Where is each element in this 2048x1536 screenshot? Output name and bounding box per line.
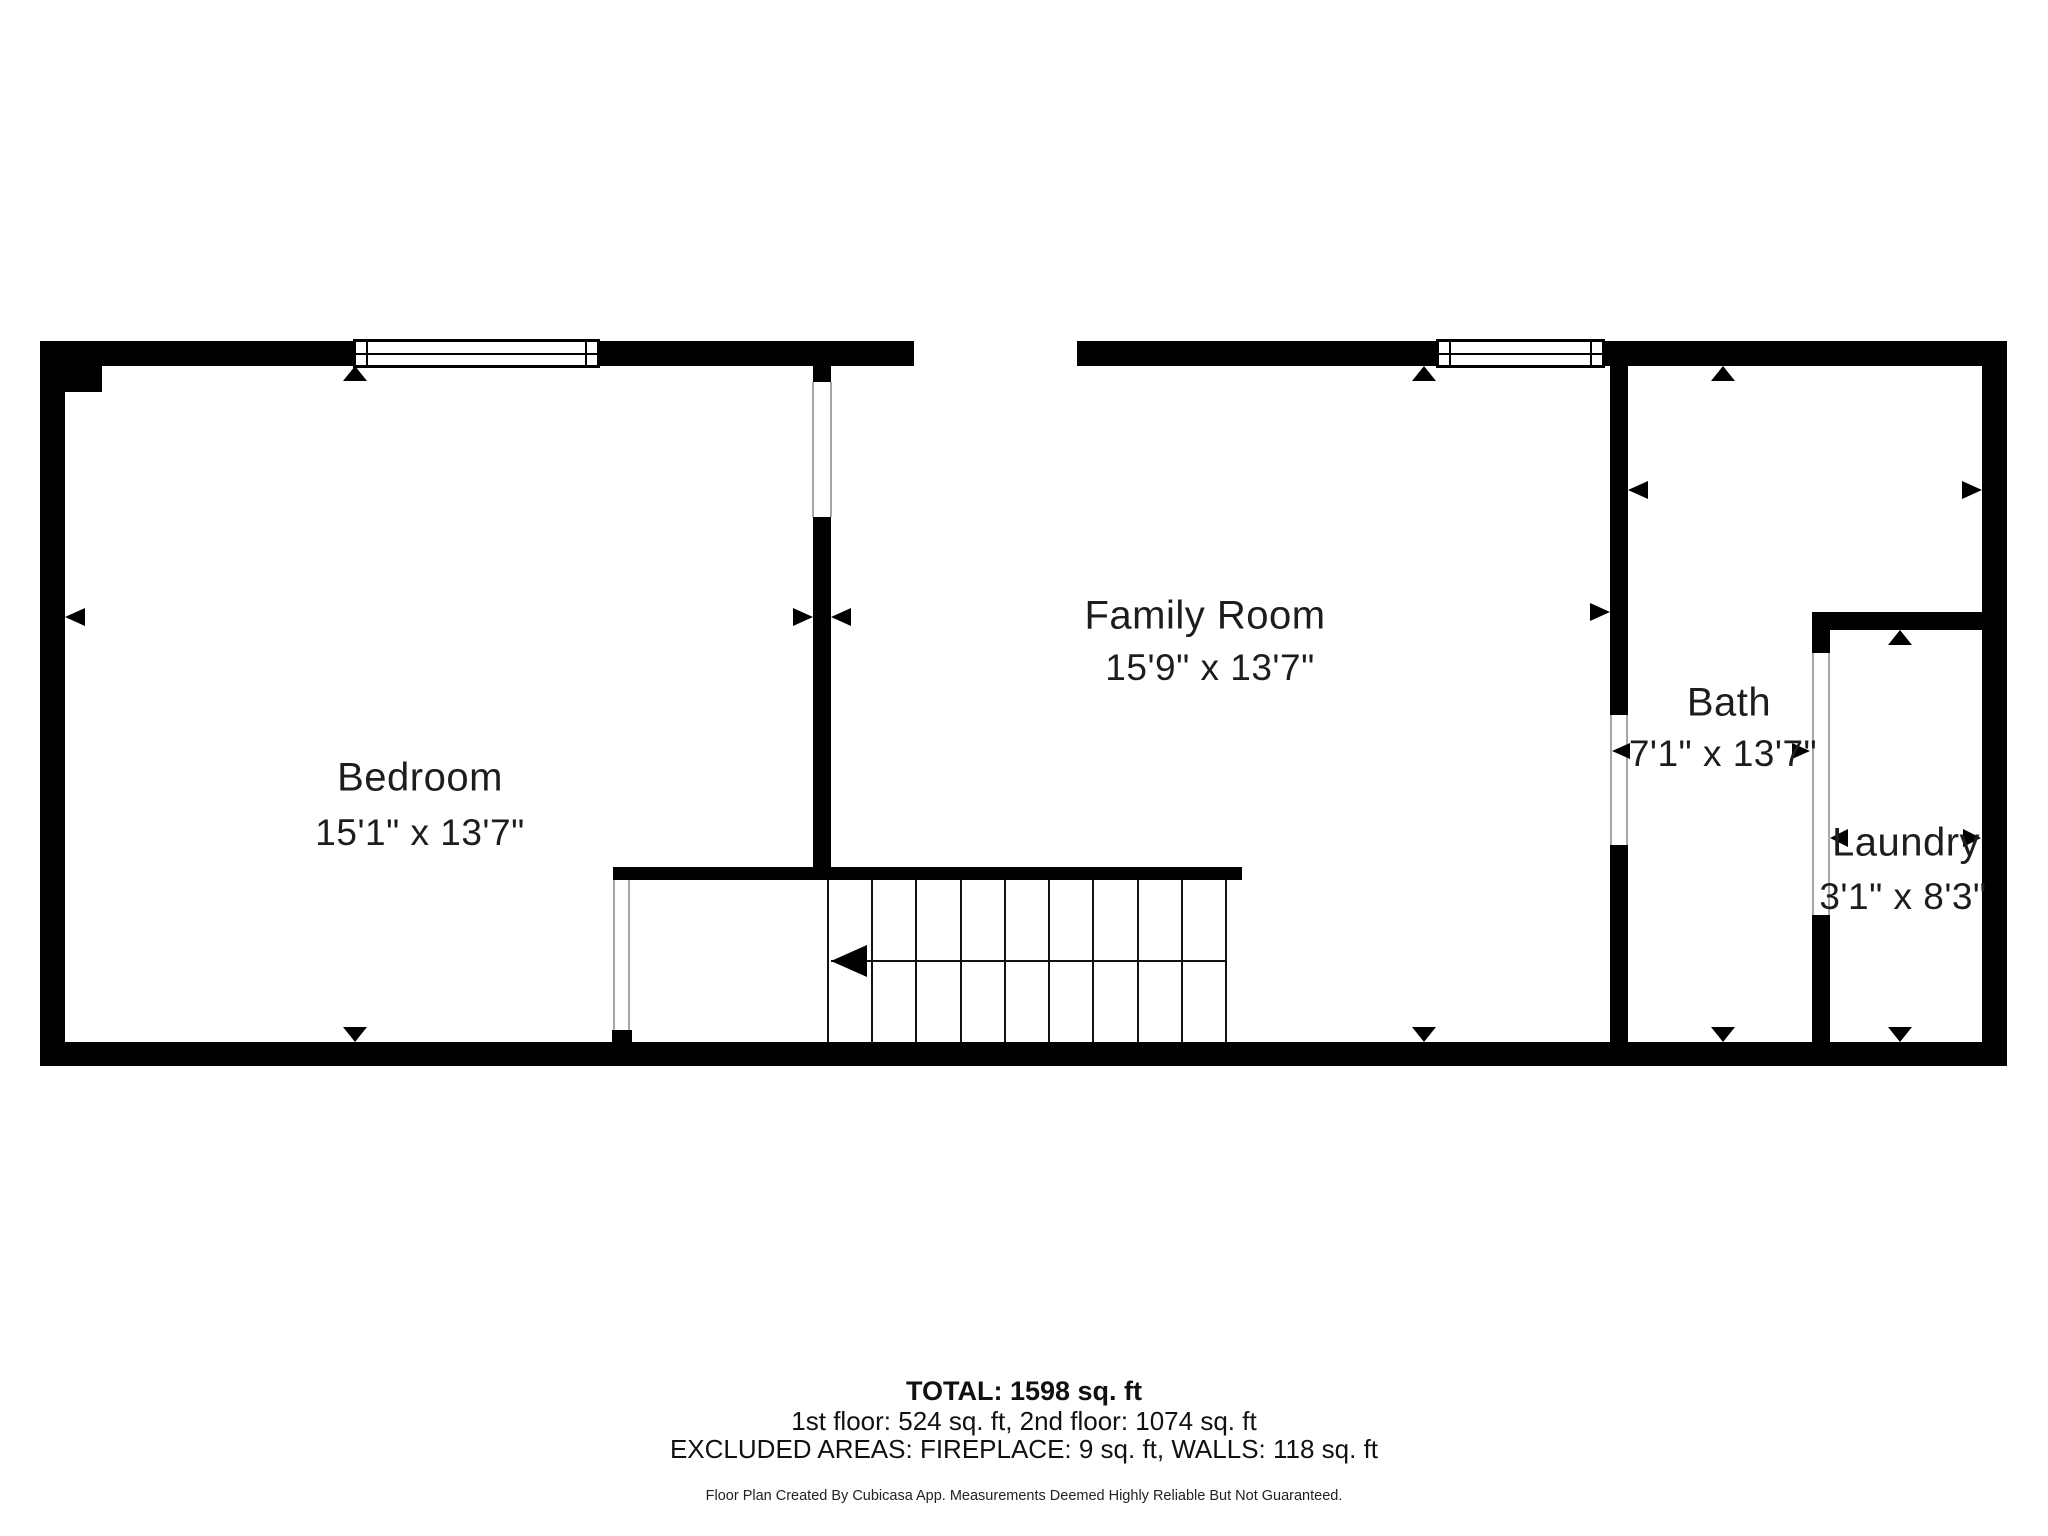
window-frame-cap: [1449, 342, 1451, 365]
stair-tread-line: [827, 880, 829, 1042]
window: [353, 339, 600, 368]
dimension-arrow: [1888, 630, 1912, 645]
stair-direction-line: [831, 960, 1226, 962]
floor-plan-canvas: Bedroom15'1" x 13'7"Family Room15'9" x 1…: [0, 0, 2048, 1536]
total-area-text: TOTAL: 1598 sq. ft: [0, 1376, 2048, 1407]
dimension-arrow: [1628, 481, 1648, 499]
door-opening-jamb: [812, 382, 814, 517]
dimension-arrow: [1711, 1027, 1735, 1042]
stair-direction-arrow: [831, 945, 867, 977]
wall-left-wall: [40, 341, 65, 1066]
excluded-areas-text: EXCLUDED AREAS: FIREPLACE: 9 sq. ft, WAL…: [0, 1434, 2048, 1465]
disclaimer-text: Floor Plan Created By Cubicasa App. Meas…: [0, 1488, 2048, 1504]
dimension-arrow: [1590, 603, 1610, 621]
dimension-arrow: [793, 608, 813, 626]
dimension-arrow: [343, 366, 367, 381]
room-label-bath: Bath: [1687, 681, 1771, 726]
door-opening-jamb: [830, 382, 832, 517]
room-label-bedroom: Bedroom: [337, 756, 503, 801]
door-opening-jamb: [628, 880, 630, 1030]
floor-areas-text: 1st floor: 524 sq. ft, 2nd floor: 1074 s…: [0, 1406, 2048, 1437]
dimension-arrow: [1412, 366, 1436, 381]
window: [1436, 339, 1605, 368]
room-dims-bath: 7'1" x 13'7": [1629, 733, 1817, 775]
room-label-laundry: Laundry: [1832, 821, 1980, 866]
wall-bedroom-family-wall-stub: [813, 366, 831, 382]
dimension-arrow: [65, 608, 85, 626]
window-glazing-line: [356, 353, 597, 355]
dimension-arrow: [831, 608, 851, 626]
door-opening-jamb: [1626, 715, 1628, 845]
wall-laundry-wall-lower: [1812, 915, 1830, 1042]
dimension-arrow: [343, 1027, 367, 1042]
room-label-family-room: Family Room: [1084, 594, 1325, 639]
dimension-arrow: [1888, 1027, 1912, 1042]
dimension-arrow: [1412, 1027, 1436, 1042]
door-opening-jamb: [1812, 653, 1814, 915]
window-frame-cap: [366, 342, 368, 365]
wall-family-bath-wall-upper: [1610, 366, 1628, 715]
room-dims-bedroom: 15'1" x 13'7": [315, 812, 524, 854]
wall-stairwell-wall: [613, 867, 1242, 880]
door-opening-jamb: [1610, 715, 1612, 845]
room-dims-laundry: 3'1" x 8'3": [1819, 876, 1986, 918]
window-glazing-line: [1439, 353, 1602, 355]
wall-top-left-corner-block: [40, 341, 102, 392]
dimension-arrow: [1711, 366, 1735, 381]
room-dims-family-room: 15'9" x 13'7": [1105, 647, 1314, 689]
window-frame-cap: [585, 342, 587, 365]
wall-bedroom-family-wall: [813, 517, 831, 880]
wall-bedroom-door-stub: [612, 1030, 632, 1042]
wall-bottom-wall: [40, 1042, 2007, 1066]
dimension-arrow: [1612, 743, 1630, 759]
wall-laundry-wall-stub: [1812, 630, 1830, 653]
wall-right-wall: [1982, 341, 2007, 1066]
wall-family-bath-wall-lower: [1610, 845, 1628, 1042]
door-opening-jamb: [613, 880, 615, 1030]
dimension-arrow: [1962, 481, 1982, 499]
window-frame-cap: [1590, 342, 1592, 365]
wall-laundry-top-wall: [1812, 612, 1982, 630]
